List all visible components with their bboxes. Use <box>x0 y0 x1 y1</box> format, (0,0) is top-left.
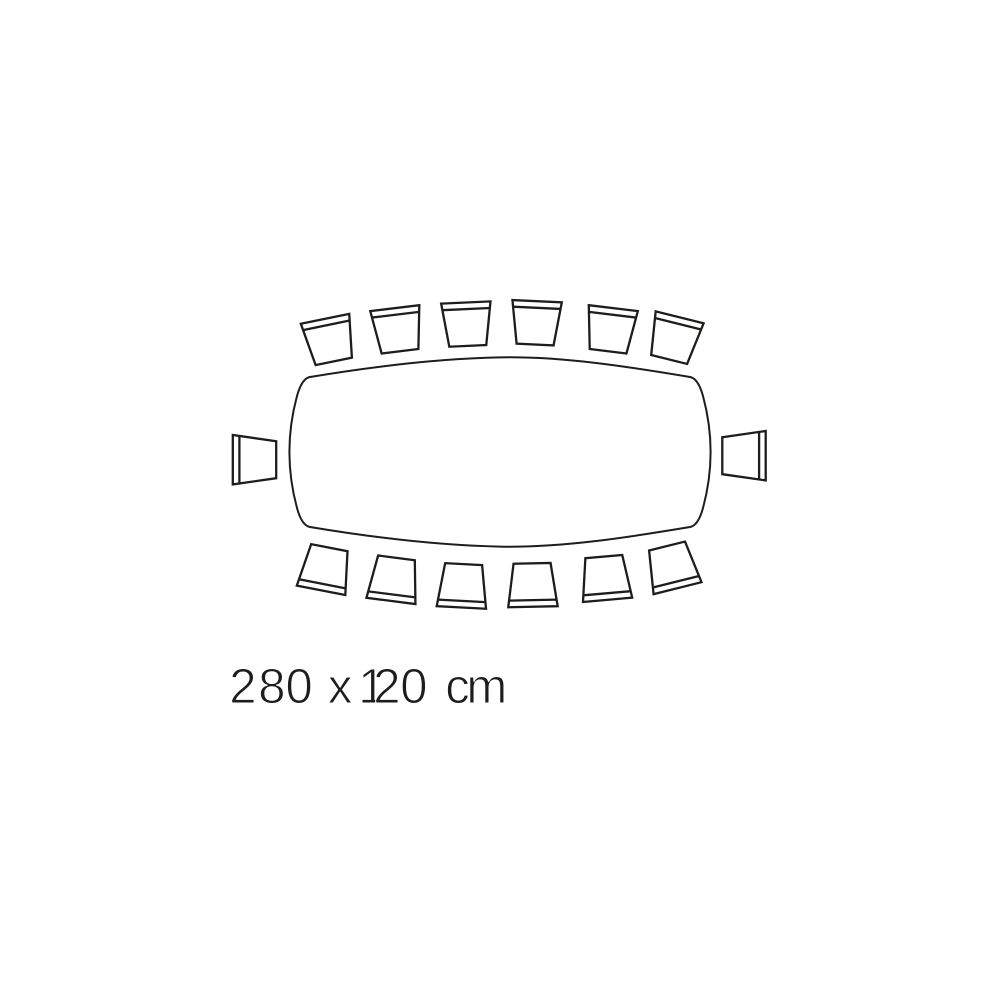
svg-text:280 x 120 cm: 280 x 120 cm <box>229 660 507 714</box>
